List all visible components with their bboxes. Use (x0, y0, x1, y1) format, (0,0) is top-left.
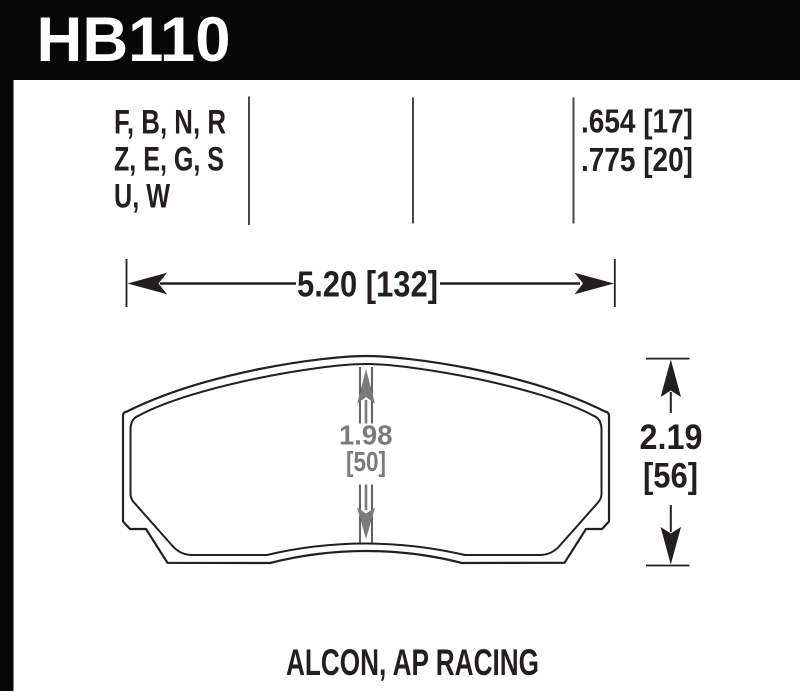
svg-text:ALCON, AP RACING: ALCON, AP RACING (286, 642, 539, 683)
svg-text:.654 [17]: .654 [17] (581, 102, 693, 139)
svg-text:2.19: 2.19 (640, 418, 703, 457)
svg-text:HB110: HB110 (37, 5, 231, 75)
svg-text:Z, E, G, S: Z, E, G, S (114, 141, 224, 179)
svg-text:[50]: [50] (346, 446, 386, 477)
svg-text:U, W: U, W (114, 178, 171, 216)
svg-text:F, B, N, R: F, B, N, R (114, 104, 226, 142)
svg-text:5.20 [132]: 5.20 [132] (297, 264, 438, 305)
svg-text:.775 [20]: .775 [20] (581, 141, 693, 178)
svg-text:[56]: [56] (643, 457, 698, 496)
